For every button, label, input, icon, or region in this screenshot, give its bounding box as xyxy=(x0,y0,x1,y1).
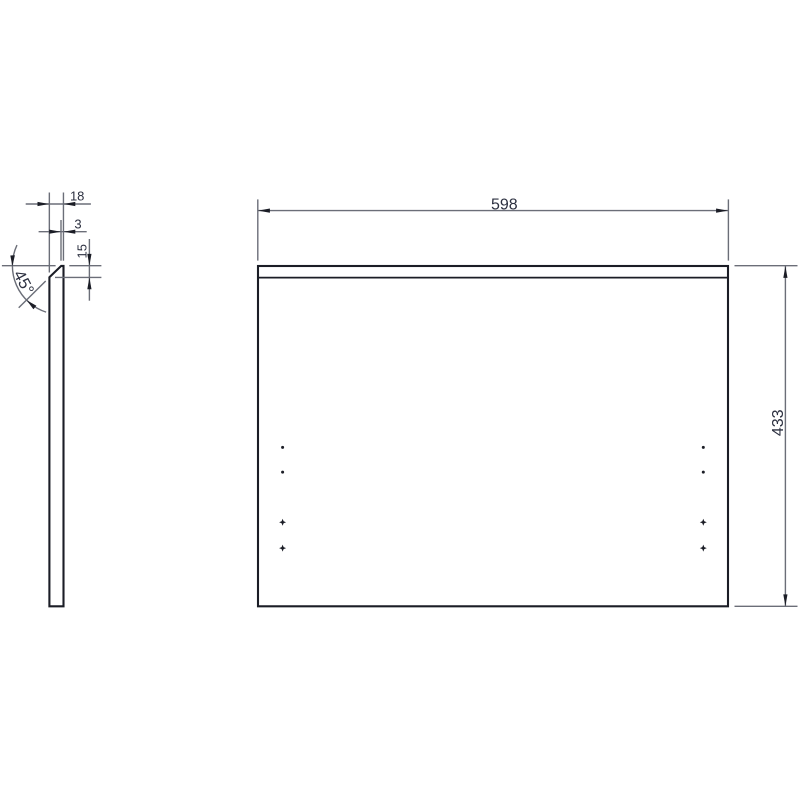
svg-text:15: 15 xyxy=(74,244,89,258)
svg-text:433: 433 xyxy=(770,409,787,436)
svg-text:3: 3 xyxy=(74,217,81,232)
svg-text:18: 18 xyxy=(70,189,84,204)
svg-text:598: 598 xyxy=(491,197,518,214)
